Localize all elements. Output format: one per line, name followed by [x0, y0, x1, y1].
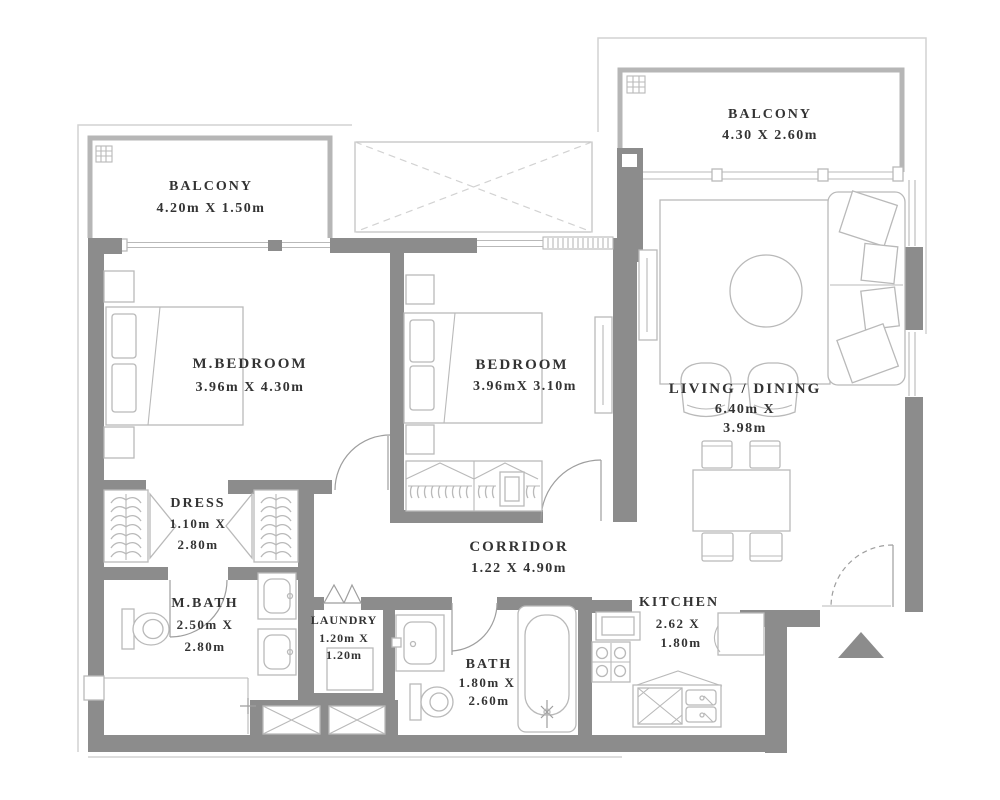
shaft-x-box: [329, 706, 385, 734]
oven: [596, 612, 640, 640]
bath-dims-2: 2.60m: [468, 693, 509, 708]
window-right-upper: [909, 180, 915, 246]
bedroom: BEDROOM 3.96mX 3.10m: [404, 275, 612, 511]
living-dining-dims-2: 3.98m: [723, 421, 767, 436]
toilet: [410, 684, 453, 720]
drain-hatch-icon: [96, 146, 112, 162]
corridor-dims: 1.22 X 4.90m: [471, 561, 567, 576]
kitchen-dims-1: 2.62 X: [656, 616, 700, 631]
sink: [258, 629, 296, 675]
wall-laundry-right: [383, 597, 395, 707]
wardrobe: [406, 461, 542, 511]
corridor: CORRIDOR 1.22 X 4.90m: [469, 539, 568, 576]
wall-bedroom-living: [613, 238, 637, 522]
m-bath-dims-2: 2.80m: [184, 639, 225, 654]
wall-between-bedrooms: [390, 252, 404, 523]
bedroom-dims: 3.96mX 3.10m: [473, 379, 577, 394]
wardrobe-door: [226, 494, 252, 558]
stove: [592, 642, 630, 682]
m-bedroom-label: M.BEDROOM: [192, 356, 307, 372]
void-x-lines: [355, 142, 592, 232]
door-laundry-bifold: [324, 585, 361, 603]
m-bath-dims-1: 2.50m X: [177, 617, 234, 632]
dining-chair: [702, 533, 733, 561]
dress: DRESS 1.10m X 2.80m: [104, 490, 298, 562]
balcony-left: BALCONY 4.20m X 1.50m: [90, 138, 330, 251]
entrance-arrow-icon: [838, 632, 884, 658]
balcony-right-label: BALCONY: [728, 107, 812, 122]
dining-chair: [750, 441, 780, 468]
wall-entrance-side: [765, 627, 787, 753]
floor-plan: BALCONY 4.20m X 1.50m BALCONY 4.30 X 2.6…: [0, 0, 1000, 800]
balcony-right: BALCONY 4.30 X 2.60m: [620, 70, 903, 181]
door-bedroom: [541, 460, 601, 521]
door-bath: [452, 603, 497, 655]
bath-label: BATH: [466, 657, 513, 672]
wall-right-lower: [905, 397, 923, 612]
wall-segment: [298, 597, 324, 610]
bath: BATH 1.80m X 2.60m: [392, 606, 576, 732]
fridge: [714, 613, 764, 655]
kitchen: KITCHEN 2.62 X 1.80m: [592, 595, 764, 727]
toilet: [122, 609, 169, 649]
wall-kitchen-top: [592, 600, 632, 613]
wall-bottom: [88, 735, 787, 752]
sliding-door: [120, 239, 330, 251]
pillow: [410, 320, 434, 362]
drain-hatch-icon: [627, 76, 645, 93]
kitchen-dims-2: 1.80m: [660, 635, 701, 650]
window-hatched: [543, 237, 613, 249]
tap-icon: [392, 638, 401, 647]
window: [477, 241, 543, 247]
wall-mullion: [268, 240, 282, 251]
pillow: [410, 366, 434, 410]
nightstand: [406, 275, 434, 304]
wardrobe-right: [226, 490, 298, 562]
dining-set: [693, 441, 790, 561]
dress-dims-1: 1.10m X: [170, 516, 227, 531]
dining-chair: [702, 441, 732, 468]
bathtub: [518, 606, 576, 732]
laundry-dims-2: 1.20m: [326, 648, 362, 662]
balcony-right-dims: 4.30 X 2.60m: [722, 128, 818, 143]
laundry-label: LAUNDRY: [311, 613, 378, 627]
shower: [84, 676, 256, 734]
kitchen-label: KITCHEN: [639, 595, 719, 610]
pillow: [112, 364, 136, 412]
sink: [258, 573, 296, 619]
balcony-left-dims: 4.20m X 1.50m: [157, 201, 266, 216]
wall-niche: [84, 676, 104, 700]
sink: [392, 615, 444, 671]
wall-segment: [395, 597, 452, 610]
m-bedroom: M.BEDROOM 3.96m X 4.30m: [104, 271, 308, 458]
bath-dims-1: 1.80m X: [459, 675, 516, 690]
coffee-table: [730, 255, 802, 327]
column-inset: [622, 154, 637, 167]
door-m-bedroom: [335, 435, 390, 490]
wall-bath-kitchen: [578, 597, 592, 737]
wardrobe-left: [104, 490, 176, 562]
living-dining-label: LIVING / DINING: [669, 381, 822, 397]
kitchen-sink-unit: [633, 685, 721, 727]
tv-console: [639, 250, 657, 340]
nightstand: [104, 271, 134, 302]
wall-segment-left: [88, 238, 104, 752]
nightstand: [406, 425, 434, 454]
dress-dims-2: 2.80m: [177, 537, 218, 552]
wall-right-upper: [905, 247, 923, 330]
dining-table: [693, 470, 790, 531]
m-bedroom-dims: 3.96m X 4.30m: [196, 380, 305, 395]
m-bath-label: M.BATH: [171, 596, 238, 611]
window-right-lower: [909, 332, 915, 396]
door-entrance: [822, 545, 893, 658]
wall-segment-top: [330, 238, 477, 253]
living-dining: LIVING / DINING 6.40m X 3.98m: [639, 191, 905, 561]
laundry: LAUNDRY 1.20m X 1.20m: [311, 613, 378, 690]
sofa: [828, 191, 905, 385]
wall-bedroom-bottom: [404, 510, 543, 523]
living-dining-dims-1: 6.40m X: [715, 402, 775, 417]
corridor-label: CORRIDOR: [469, 539, 568, 555]
sofa-cushion: [861, 243, 898, 283]
bedroom-label: BEDROOM: [475, 357, 568, 373]
rug: [660, 200, 830, 384]
shaft-x-box: [263, 706, 320, 734]
counter-edge: [634, 671, 722, 686]
sofa-cushion: [861, 287, 899, 330]
pillow: [112, 314, 136, 358]
void-shaft: [355, 142, 592, 232]
dress-label: DRESS: [170, 496, 225, 511]
sliding-door: [643, 167, 903, 181]
balcony-left-label: BALCONY: [169, 179, 253, 194]
wall-dress-right: [298, 480, 314, 580]
nightstand: [104, 427, 134, 458]
wall-segment: [104, 567, 168, 580]
laundry-dims-1: 1.20m X: [319, 631, 369, 645]
dining-chair: [750, 533, 782, 561]
